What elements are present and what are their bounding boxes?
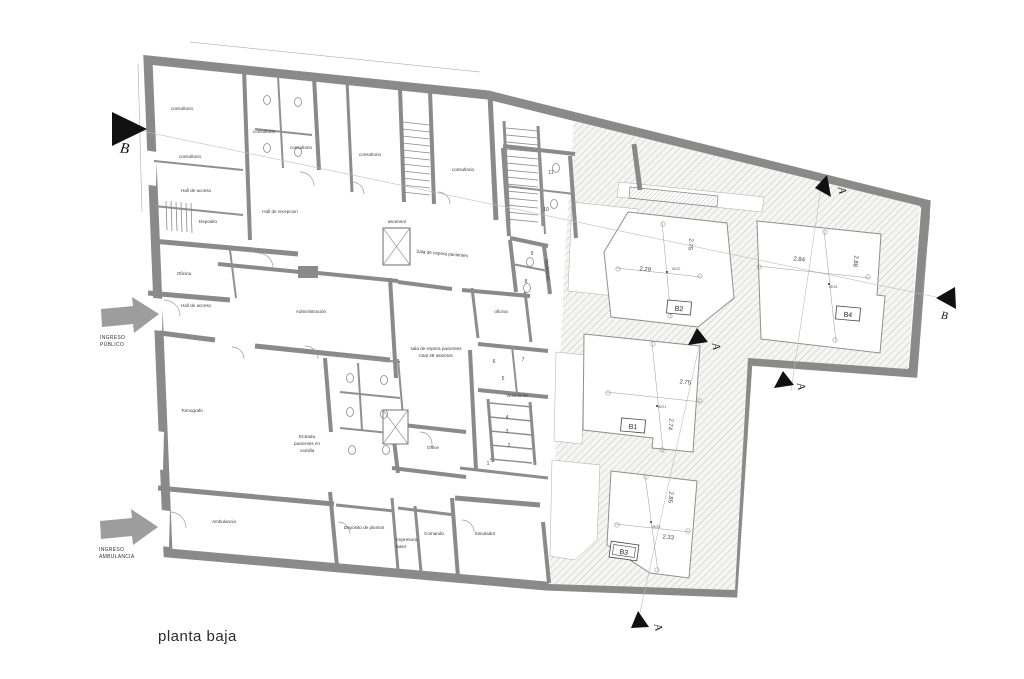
section-label-b: B — [119, 140, 130, 157]
section-arrow-b-right-icon — [936, 287, 956, 309]
iso-tag: ISO3 — [652, 525, 661, 529]
room-number: 11 — [548, 170, 553, 176]
patio-tag-b2: B2 — [667, 300, 692, 315]
room-number: 10 — [543, 207, 549, 213]
elevator — [383, 228, 410, 265]
dimension: 2.33 — [662, 534, 675, 541]
room-number: 9 — [531, 251, 534, 257]
room-label-oficina: Oficina — [177, 271, 192, 276]
section-label-a: A — [651, 621, 665, 632]
room-label-vestidores: Vestidores — [506, 393, 528, 398]
service-shaft — [383, 410, 408, 444]
room-label-tomografo: Tomografo — [181, 408, 203, 413]
room-number: 8 — [525, 279, 528, 285]
room-label-entrada-camilla: Entrada — [299, 434, 316, 439]
room-label-office: Office — [427, 445, 439, 450]
wall-pier — [298, 266, 318, 278]
room-label-sala-espera-48: total 48 asientos — [419, 353, 453, 358]
room-label-ascensor: ascensor — [388, 219, 407, 224]
dimension: 2.74 — [666, 418, 673, 431]
room-label-comando: Comando — [424, 531, 444, 536]
room-label-deposito: Deposito — [199, 219, 218, 224]
room-label-sala-espera-48: sala de espera pacientes — [410, 346, 462, 351]
room-label-simulador: Simulador — [475, 531, 496, 536]
room-label-administracion: Administración — [296, 309, 327, 314]
section-label-b: B — [940, 310, 949, 323]
room-label-impresora: Impresora — [396, 537, 418, 543]
iso-tag: ISO2 — [672, 267, 681, 271]
svg-text:B3: B3 — [619, 549, 629, 557]
entry-ambulancia: INGRESO AMBULANCIA — [99, 509, 158, 560]
floor-plan-drawing: consultorio consultorio consultorio cons… — [0, 0, 1024, 679]
entry-label-publico: PÚBLICO — [100, 341, 124, 348]
svg-text:B4: B4 — [843, 312, 852, 320]
dimension: 2.85 — [666, 491, 673, 504]
room-number: 2 — [508, 443, 511, 449]
dimension: 2.29 — [639, 266, 652, 273]
patio-tag-b1: B1 — [621, 418, 646, 433]
hatch-pocket — [554, 352, 584, 444]
room-label-entrada-camilla: pacientes en — [294, 441, 320, 446]
entry-label-ambulancia: AMBULANCIA — [99, 554, 135, 560]
room-label-hall-acceso: Hall de acceso — [181, 303, 212, 308]
svg-text:B1: B1 — [628, 424, 637, 432]
room-label-hall-acceso: Hall de acceso — [181, 188, 212, 193]
drawing-title: planta baja — [158, 628, 237, 645]
room-label-impresora: laser — [396, 544, 407, 550]
room-label-consultorio: consultorio — [253, 129, 276, 134]
room-label-consultorio: consultorio — [290, 145, 313, 150]
entry-label-publico: INGRESO — [100, 335, 125, 341]
room-number: 3 — [506, 429, 509, 435]
patio-tag-b4: B4 — [836, 306, 861, 321]
room-number: 6 — [493, 359, 496, 365]
room-label-deposito-plomos: Deposito de plomos — [344, 525, 385, 530]
section-arrow-a-mid2-icon — [774, 371, 794, 388]
entry-label-ambulancia: INGRESO — [99, 547, 124, 553]
iso-tag: ISO1 — [658, 405, 667, 409]
iso-tag: ISO4 — [829, 285, 838, 289]
room-label-consultorio: consultorio — [359, 152, 382, 157]
room-label-oficina-small: oficina — [494, 309, 508, 314]
room-label-hall-recepcion: Hall de recepcion — [262, 209, 298, 214]
dimension: 2.75 — [686, 238, 693, 251]
room-label-consultorio: consultorio — [179, 154, 202, 159]
room-number: 7 — [522, 357, 525, 363]
dimension: 2.88 — [851, 255, 858, 268]
section-label-a: A — [794, 381, 807, 391]
entry-arrow-ambulancia-icon — [100, 509, 158, 545]
dimension: 2.84 — [793, 256, 806, 263]
room-label-consultorio: consultorio — [171, 106, 194, 111]
floor-plan-svg: consultorio consultorio consultorio cons… — [0, 0, 1024, 679]
dimension: 2.75 — [679, 379, 692, 386]
room-number: 5 — [502, 376, 505, 382]
patio-b4-area — [757, 221, 885, 353]
svg-text:B2: B2 — [674, 306, 683, 314]
room-label-ambulancia: Ambulancia — [212, 519, 236, 524]
room-label-entrada-camilla: camilla — [300, 448, 315, 453]
room-number: 1 — [487, 461, 490, 467]
room-label-consultorio: consultorio — [452, 167, 475, 172]
patio-tag-b3: B3 — [609, 541, 639, 561]
room-number: 4 — [506, 415, 509, 421]
